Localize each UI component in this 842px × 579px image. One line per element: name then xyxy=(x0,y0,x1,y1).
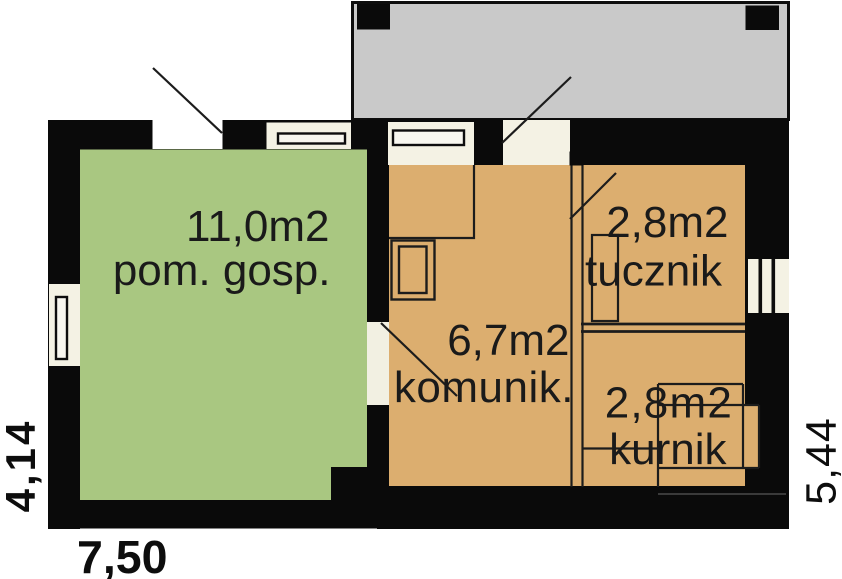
svg-text:2,8m2: 2,8m2 xyxy=(606,198,728,247)
svg-text:4,14: 4,14 xyxy=(0,419,44,513)
svg-text:pom. gosp.: pom. gosp. xyxy=(113,246,331,295)
svg-text:5,44: 5,44 xyxy=(797,417,842,505)
svg-text:kurnik: kurnik xyxy=(609,425,727,474)
svg-text:11,0m2: 11,0m2 xyxy=(186,202,330,251)
svg-text:komunik.: komunik. xyxy=(394,363,574,412)
svg-text:7,50: 7,50 xyxy=(77,531,168,579)
svg-text:tucznik: tucznik xyxy=(585,247,723,296)
svg-text:2,8m2: 2,8m2 xyxy=(605,379,733,428)
svg-text:6,7m2: 6,7m2 xyxy=(447,316,569,365)
